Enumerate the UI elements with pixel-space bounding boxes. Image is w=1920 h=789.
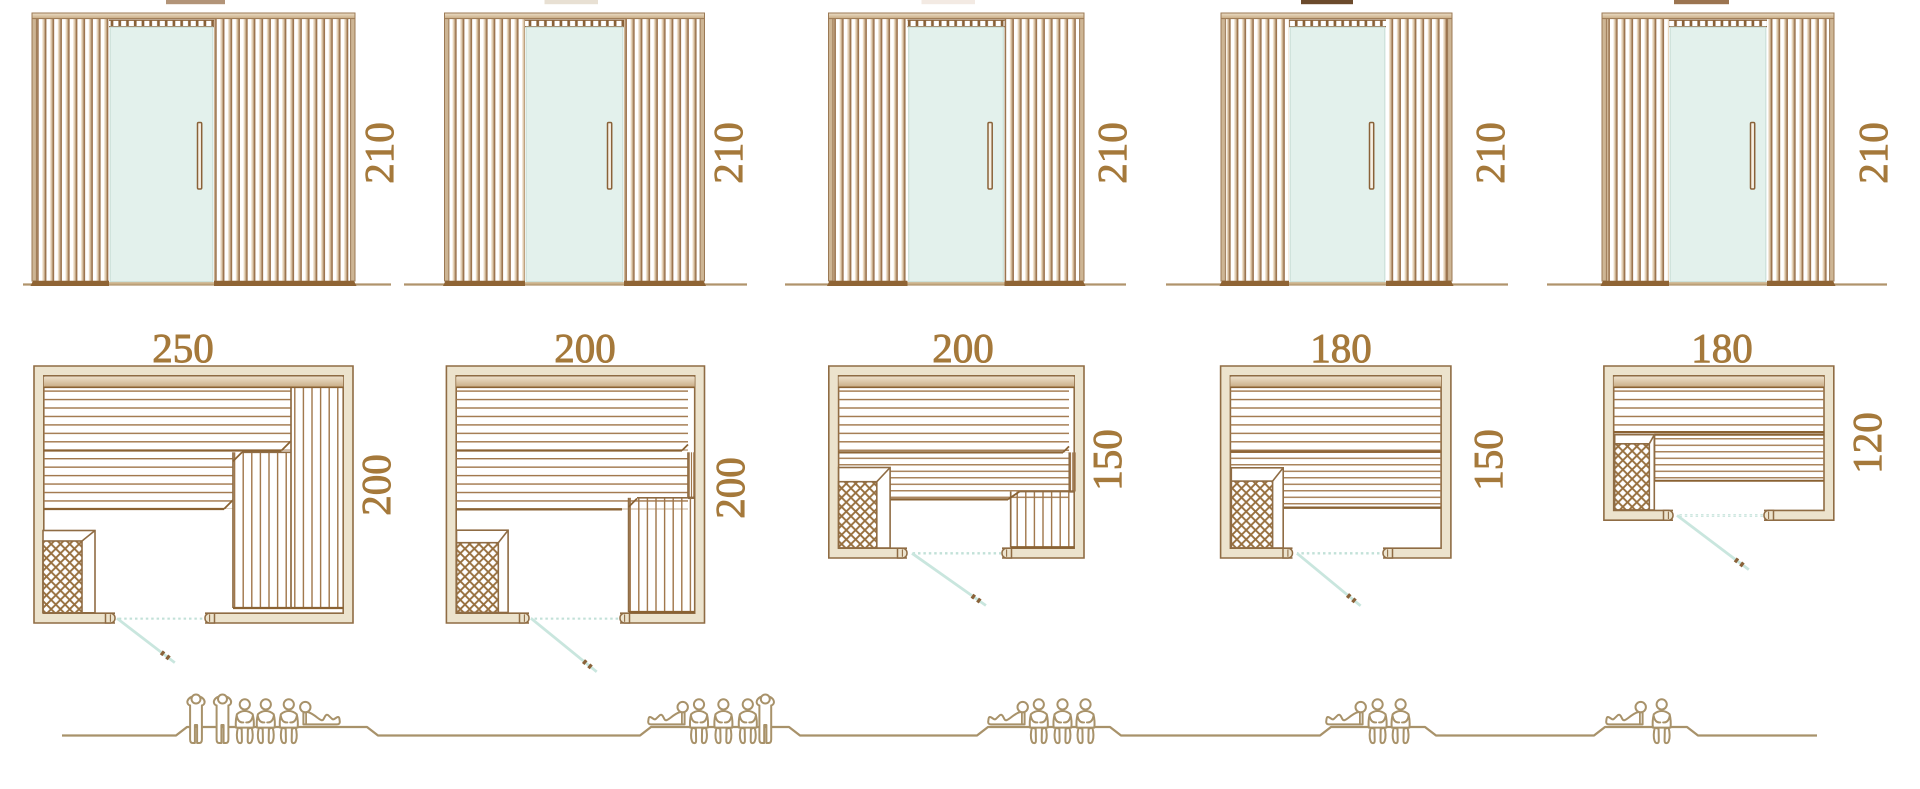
svg-text:150: 150 xyxy=(1084,429,1130,491)
svg-text:210: 210 xyxy=(1850,122,1896,184)
svg-text:210: 210 xyxy=(356,122,402,184)
svg-text:250: 250 xyxy=(152,325,214,371)
svg-text:180: 180 xyxy=(1691,325,1753,371)
svg-text:200: 200 xyxy=(707,457,753,519)
svg-text:200: 200 xyxy=(932,325,994,371)
svg-text:200: 200 xyxy=(554,325,616,371)
svg-text:200: 200 xyxy=(353,454,399,516)
svg-text:120: 120 xyxy=(1844,412,1890,474)
svg-text:210: 210 xyxy=(705,122,751,184)
svg-text:150: 150 xyxy=(1465,429,1511,491)
svg-text:180: 180 xyxy=(1310,325,1372,371)
svg-text:210: 210 xyxy=(1467,122,1513,184)
svg-text:210: 210 xyxy=(1089,122,1135,184)
